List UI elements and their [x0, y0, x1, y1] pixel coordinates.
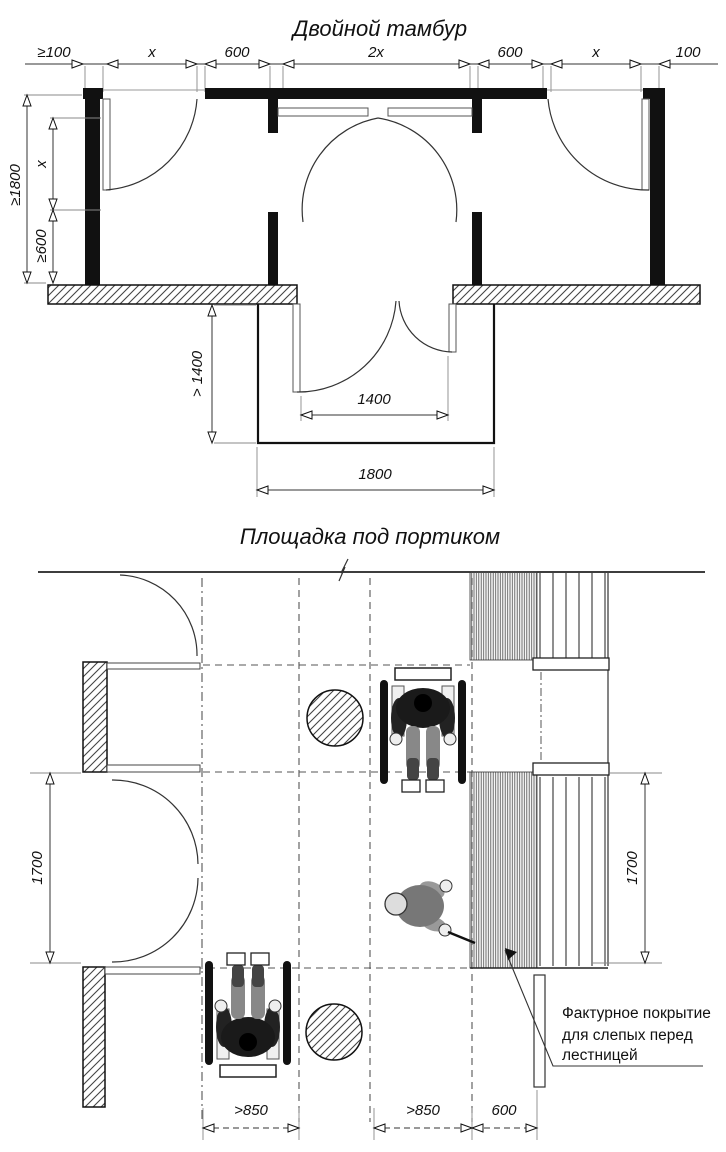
- door-leaf-center-b: [388, 108, 472, 116]
- partition-left-upper: [268, 99, 278, 133]
- dim-label-depth: > 1400: [189, 350, 206, 397]
- blind-person-with-cane: [385, 878, 475, 943]
- tactile-strip-upper: [470, 572, 537, 660]
- dim-label-lane-right: >850: [406, 1102, 440, 1119]
- dim-label-door-left: x: [147, 44, 156, 61]
- drawing-sheet: Двойной тамбур ≥100 x: [0, 0, 726, 1152]
- pier-lower: [83, 967, 105, 1107]
- dim-label-door-right: x: [591, 44, 600, 61]
- right-outer-wall: [650, 99, 665, 285]
- door-leaf-center-a: [278, 108, 368, 116]
- inner-door-leaf-main: [293, 304, 300, 392]
- dim-label-left-upper: x: [33, 160, 50, 169]
- dim-label-left-lower: ≥600: [33, 229, 50, 263]
- accessibility-plan-drawing: Двойной тамбур ≥100 x: [0, 0, 726, 1152]
- door-swing-middle-a: [112, 780, 198, 864]
- bottom-diagram-portico-platform: Площадка под портиком: [29, 524, 711, 1140]
- top-diagram-title: Двойной тамбур: [290, 16, 467, 41]
- column-lower: [306, 1004, 362, 1060]
- door-swing-top: [120, 575, 197, 656]
- tactile-strip-lower: [470, 772, 537, 968]
- side-wall-lower: [105, 967, 200, 974]
- dim-label-outer-width: 1800: [358, 466, 392, 483]
- person-head: [385, 893, 407, 915]
- dim-label-inner-door: 1400: [357, 391, 391, 408]
- annotation-line-3: лестницей: [562, 1047, 638, 1064]
- landing-rail-lower: [533, 763, 609, 775]
- partition-right-upper: [472, 99, 482, 133]
- entrance-piers: [83, 575, 200, 1107]
- door-swing-arcs: [106, 99, 649, 222]
- annotation-line-2: для слепых перед: [562, 1027, 693, 1044]
- dim-label-center-door: 2x: [367, 44, 384, 61]
- break-mark: [339, 559, 348, 581]
- column-upper: [307, 690, 363, 746]
- vestibule-doors: [103, 99, 649, 222]
- pier-upper: [83, 662, 107, 772]
- partition-left-lower: [268, 212, 278, 285]
- dim-label-lane-left: >850: [234, 1102, 268, 1119]
- side-wall-upper-b: [107, 765, 200, 772]
- door-leaf-left: [103, 99, 110, 190]
- dimension-chain-top: [25, 60, 718, 92]
- inner-door-leaf-small: [449, 304, 456, 352]
- side-wall-upper-a: [107, 663, 200, 669]
- partition-right-lower: [472, 212, 482, 285]
- top-diagram-double-vestibule: Двойной тамбур ≥100 x: [7, 16, 718, 497]
- dim-label-corner-right: 100: [675, 44, 701, 61]
- bottom-diagram-title: Площадка под портиком: [240, 524, 500, 549]
- dim-label-corner-left: ≥100: [37, 44, 71, 61]
- dim-label-600-right: 600: [497, 44, 523, 61]
- dim-label-1700-left: 1700: [29, 851, 46, 885]
- door-swing-middle-b: [112, 878, 198, 962]
- left-outer-wall: [85, 99, 100, 285]
- projecting-vestibule: > 1400 1400 1800: [189, 301, 494, 497]
- dim-label-1700-right: 1700: [624, 851, 641, 885]
- dim-label-left-outer: ≥1800: [7, 164, 24, 206]
- landing-rail-upper: [533, 658, 609, 670]
- vestibule-walls: [83, 88, 665, 285]
- inner-wall-strips: [48, 285, 700, 304]
- annotation-line-1: Фактурное покрытие: [562, 1005, 711, 1022]
- door-leaf-right: [642, 99, 649, 190]
- dim-label-600-left: 600: [224, 44, 250, 61]
- wheelchair-user-lower: [205, 953, 291, 1077]
- lower-rail-post: [534, 975, 545, 1087]
- wheelchair-user-upper: [380, 668, 466, 792]
- dim-label-tactile: 600: [491, 1102, 517, 1119]
